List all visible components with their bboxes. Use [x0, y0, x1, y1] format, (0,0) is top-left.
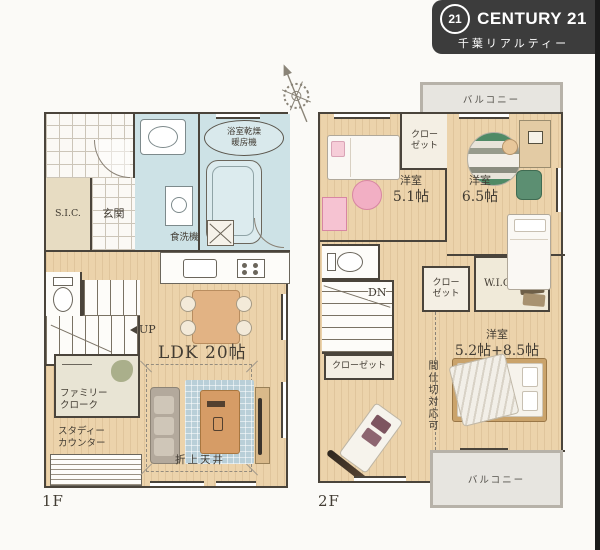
room-5-1-size: 5.1帖	[393, 189, 429, 205]
floorplan-page: { "brand": { "mark": "21", "name": "CENT…	[0, 0, 600, 550]
stair-landing	[82, 280, 140, 316]
kitchen-sink-icon	[183, 259, 217, 278]
window-mark	[354, 476, 406, 483]
closet-c-label: クローゼット	[332, 361, 386, 372]
partition-note: 間仕切対応可	[424, 360, 439, 432]
sofa	[150, 387, 180, 464]
study-line2: カウンター	[58, 438, 106, 449]
room-6-5-size: 6.5帖	[462, 189, 498, 205]
sic-label: S.I.C.	[55, 208, 81, 220]
coffered-ceiling-label: 折上天井	[175, 454, 225, 467]
washbasin-icon	[140, 119, 186, 155]
coffee-table	[200, 390, 240, 454]
room-6-5: 洋室 6.5帖	[447, 114, 565, 256]
balcony-top-label: バルコニー	[463, 92, 520, 106]
balcony-top: バルコニー	[420, 82, 563, 115]
window-mark	[556, 168, 563, 212]
stool	[502, 139, 518, 155]
century21-seal-icon: 21	[440, 4, 470, 34]
brand-mark: 21	[448, 12, 461, 26]
double-bed	[452, 358, 547, 422]
brand-subtitle: 千葉リアルティー	[458, 35, 569, 51]
brand-name: CENTURY 21	[477, 9, 587, 29]
bed-single-b	[507, 214, 551, 290]
toilet-room-2f	[322, 244, 380, 280]
genkan-label: 玄関	[103, 207, 125, 221]
closet-room-a: クロー ゼット	[400, 114, 447, 170]
closet-b-line1: クロー	[432, 278, 459, 289]
tv-board	[255, 387, 270, 464]
table-decor	[207, 401, 225, 407]
window-mark	[334, 112, 390, 119]
family-cloak-room: ファミリー クローク	[54, 354, 140, 418]
room-6-5-name: 洋室	[469, 174, 491, 187]
washer-drum	[171, 197, 187, 213]
dining-chair	[180, 320, 196, 336]
sofa-cushion	[154, 396, 174, 414]
dining-chair	[180, 296, 196, 312]
dn-label: DN	[368, 286, 386, 300]
dishwasher-label: 食洗機	[170, 232, 199, 244]
closet-room-b: クロー ゼット	[422, 266, 470, 312]
dining-table	[192, 290, 240, 344]
clothes-rod-icon	[62, 364, 92, 365]
sic-room: S.I.C.	[46, 178, 92, 252]
kitchen-counter	[160, 252, 290, 284]
room-5-2-name: 洋室	[486, 328, 508, 341]
toilet-room-1f	[46, 272, 82, 318]
toilet-icon	[337, 252, 363, 272]
study-counter	[50, 454, 142, 486]
floor1-plan: 浴室乾燥 暖房機 S.I.C. 玄関 UP ファミリー クローク スタディー カ…	[44, 112, 288, 488]
plant-icon	[111, 360, 133, 382]
stair-winder-line	[51, 325, 112, 353]
tv-icon	[258, 398, 262, 455]
pillow	[331, 141, 345, 157]
genkan-room: 玄関	[92, 178, 135, 252]
toilet-tank	[53, 277, 73, 286]
window-mark	[281, 382, 288, 438]
closet-b-line2: ゼット	[432, 289, 459, 300]
pantry-cross-box	[207, 220, 234, 246]
image-edge-bar	[595, 0, 600, 550]
window-mark	[459, 112, 509, 119]
desk-chair	[516, 170, 542, 200]
room-5-1-label: 洋室 5.1帖	[378, 174, 444, 206]
stove-icon	[237, 259, 265, 278]
monitor-icon	[528, 131, 543, 144]
pink-desk	[322, 197, 347, 231]
room-5-1: 洋室 5.1帖 クロー ゼット	[320, 114, 447, 242]
dining-chair	[236, 296, 252, 312]
up-label: UP	[139, 323, 156, 337]
balcony-bottom-label: バルコニー	[468, 472, 525, 486]
table-decor	[213, 417, 223, 431]
ldk-label: LDK 20帖	[158, 338, 247, 363]
closet-a-line2: ゼット	[411, 141, 438, 152]
pillow	[522, 391, 538, 411]
bath-dryer-label: 浴室乾燥 暖房機	[204, 120, 284, 156]
bathroom-door-arc	[254, 218, 284, 248]
window-mark	[216, 112, 260, 119]
bath-dryer-line1: 浴室乾燥	[227, 127, 261, 138]
clothes-pile-icon	[523, 293, 546, 307]
floor2-plan: 洋室 5.1帖 クロー ゼット 洋室 6.5帖 DN	[318, 112, 563, 483]
washing-machine-icon	[165, 186, 193, 226]
pillow	[514, 219, 546, 232]
pillow	[522, 367, 538, 387]
floor1-tag: 1F	[42, 492, 64, 510]
room-5-1-name: 洋室	[400, 174, 422, 187]
toilet-tank	[327, 253, 336, 271]
family-cloak-line2: クローク	[60, 400, 98, 412]
closet-room-c: クローゼット	[324, 354, 394, 380]
room-6-5-label: 洋室 6.5帖	[450, 174, 510, 206]
family-cloak-line1: ファミリー	[60, 388, 108, 400]
closet-a-line1: クロー	[411, 130, 438, 141]
bath-dryer-line2: 暖房機	[231, 138, 257, 149]
basin-bowl	[148, 126, 178, 148]
balcony-bottom: バルコニー	[430, 450, 563, 508]
brand-badge: 21 CENTURY 21 千葉リアルティー	[432, 0, 595, 54]
desk	[519, 120, 551, 168]
floor2-tag: 2F	[318, 492, 340, 510]
study-counter-label: スタディー カウンター	[58, 426, 106, 450]
toilet-icon	[53, 287, 73, 312]
up-arrow-icon	[130, 326, 137, 334]
sofa-cushion	[154, 438, 174, 456]
window-mark	[281, 294, 288, 340]
window-mark	[150, 481, 204, 488]
study-line1: スタディー	[58, 426, 105, 437]
window-mark	[216, 481, 256, 488]
sofa-cushion	[154, 417, 174, 435]
dining-chair	[236, 320, 252, 336]
brand-row: 21 CENTURY 21	[440, 4, 587, 34]
